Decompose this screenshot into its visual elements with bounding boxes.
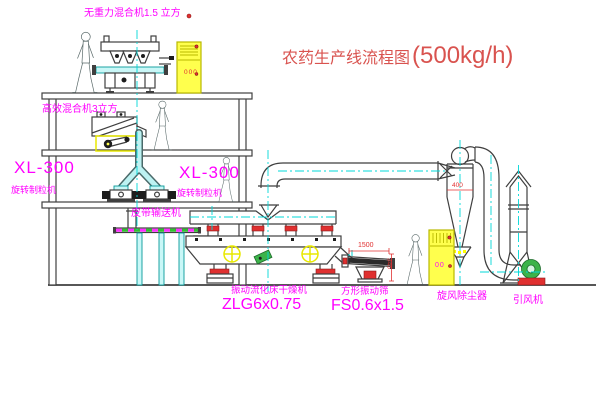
label-gravity-mixer: 无重力混合机1.5 立方 [84, 9, 181, 19]
person-figure [72, 32, 97, 92]
diagram-title-text: 农药生产线流程图 [282, 49, 410, 68]
red-marker-dot [187, 14, 191, 18]
label-dryer-model: ZLG6x0.75 [222, 297, 301, 313]
dimension-sieve-height: 345 [385, 258, 392, 269]
person-figure [404, 235, 425, 285]
cyclone-to-fan-duct [475, 147, 521, 280]
dryer-exhaust-duct [258, 161, 455, 217]
control-cabinet-top [177, 42, 201, 93]
granulator-left-machine [102, 186, 140, 202]
person-figure [151, 101, 171, 150]
diagram-capacity: (500kg/h) [412, 44, 513, 68]
label-granulator-left-name: 旋转制粒机 [11, 186, 56, 195]
cad-flow-diagram: 无重力混合机1.5 立方 农药生产线流程图 (500kg/h) 高效混合机3立方… [0, 0, 600, 403]
label-granulator-mid-name: 旋转制粒机 [177, 189, 222, 198]
side-cabinet-marks: 00 [435, 262, 445, 269]
dimension-cyclone-width: 400 [452, 183, 463, 190]
granulator-right-machine [138, 186, 176, 202]
label-granulator-mid-model: XL-300 [179, 164, 240, 181]
label-sieve-model: FS0.6x1.5 [331, 298, 404, 314]
dimension-sieve-length: 1500 [358, 242, 374, 249]
top-cabinet-marks: 000 [184, 70, 198, 77]
control-cabinet-side [429, 230, 454, 285]
label-belt-conveyor: 皮带输送机 [131, 209, 181, 219]
label-dryer-name: 振动流化床干燥机 [231, 286, 307, 296]
fluid-bed-dryer-machine [186, 211, 353, 283]
label-cyclone: 旋风除尘器 [437, 292, 487, 302]
gravity-mixer-machine [92, 36, 174, 93]
label-sieve-name: 方形振动筛 [341, 287, 389, 297]
label-efficient-mixer: 高效混合机3立方 [42, 105, 118, 115]
label-fan: 引风机 [513, 296, 543, 306]
label-granulator-left-model: XL-300 [14, 159, 75, 176]
diagram-title: 农药生产线流程图 (500kg/h) [282, 44, 513, 68]
